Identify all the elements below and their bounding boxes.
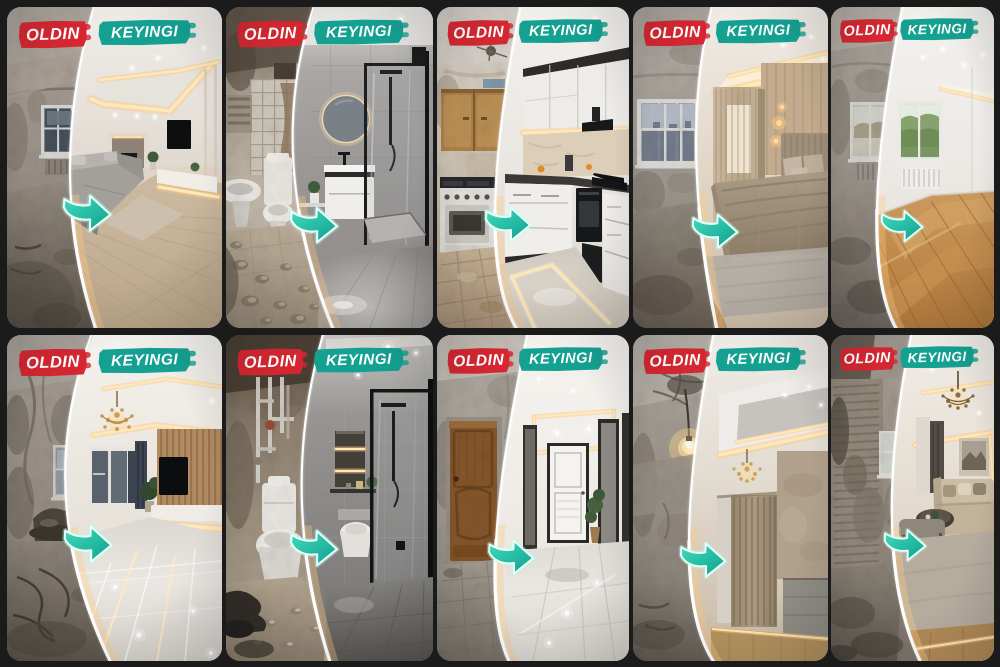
svg-text:OLDIN: OLDIN xyxy=(452,23,504,42)
svg-text:KEYINGI: KEYINGI xyxy=(110,23,178,42)
svg-text:KEYINGI: KEYINGI xyxy=(726,350,791,368)
svg-text:OLDIN: OLDIN xyxy=(25,24,80,44)
svg-text:OLDIN: OLDIN xyxy=(243,351,297,371)
svg-text:KEYINGI: KEYINGI xyxy=(110,351,178,370)
svg-text:KEYINGI: KEYINGI xyxy=(528,350,592,368)
svg-text:KEYINGI: KEYINGI xyxy=(726,22,791,40)
svg-text:KEYINGI: KEYINGI xyxy=(325,350,392,369)
svg-text:OLDIN: OLDIN xyxy=(843,21,891,39)
svg-text:OLDIN: OLDIN xyxy=(843,349,891,367)
svg-text:KEYINGI: KEYINGI xyxy=(907,20,966,37)
svg-text:OLDIN: OLDIN xyxy=(649,351,701,370)
svg-text:OLDIN: OLDIN xyxy=(25,352,80,372)
svg-text:OLDIN: OLDIN xyxy=(452,351,504,370)
svg-text:OLDIN: OLDIN xyxy=(243,23,297,43)
svg-text:KEYINGI: KEYINGI xyxy=(528,22,592,40)
svg-text:KEYINGI: KEYINGI xyxy=(325,22,392,41)
svg-text:OLDIN: OLDIN xyxy=(649,23,701,42)
svg-text:KEYINGI: KEYINGI xyxy=(907,348,966,365)
